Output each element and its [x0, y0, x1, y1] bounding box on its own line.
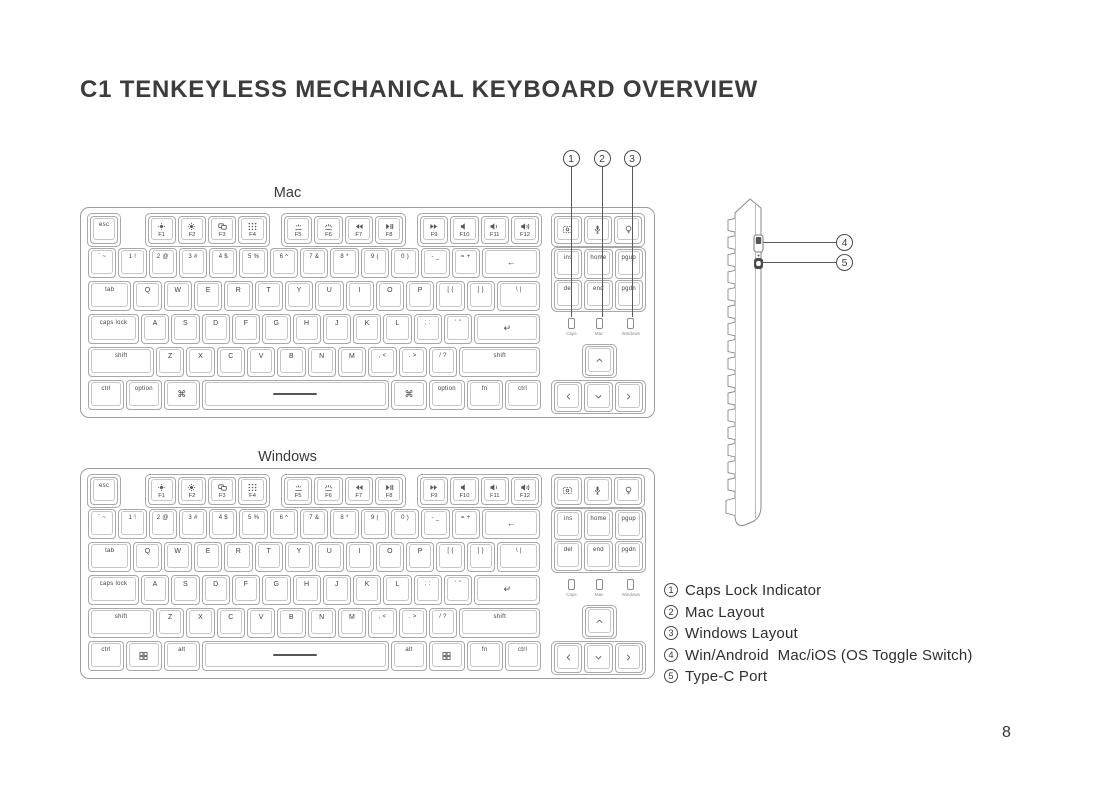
mac-led-indicator: Mac	[595, 318, 604, 336]
key	[429, 641, 465, 671]
key: F11	[481, 477, 509, 505]
legend-number-1: 1	[664, 583, 678, 597]
key: 0 )	[391, 509, 419, 539]
key: [ {	[436, 542, 464, 572]
key: 3 #	[179, 509, 207, 539]
key: ctrl	[505, 641, 541, 671]
brightness-up-icon	[186, 222, 197, 231]
key: L	[383, 314, 411, 344]
key	[554, 477, 582, 505]
key: F10	[450, 216, 478, 244]
key: ` ~	[88, 248, 116, 278]
win-logo-icon	[138, 651, 149, 660]
legend-number-4: 4	[664, 648, 678, 662]
key: K	[353, 575, 381, 605]
key: F9	[420, 477, 448, 505]
key: ' "	[444, 314, 472, 344]
key: X	[186, 347, 214, 377]
key: ; :	[414, 575, 442, 605]
key: X	[186, 608, 214, 638]
function-row: escF1F2F3F4F5F6F7F8F9F10F11F12	[87, 474, 648, 508]
callout-4-line	[763, 242, 836, 243]
key: L	[383, 575, 411, 605]
key: alt	[164, 641, 200, 671]
legend-text-2: Mac Layout	[685, 604, 765, 621]
key: F2	[178, 477, 206, 505]
key: 7 &	[300, 248, 328, 278]
command-icon: ⌘	[177, 390, 186, 399]
callout-4: 4	[836, 234, 853, 251]
key: D	[202, 575, 230, 605]
main-key-rows: ` ~1 !2 @3 #4 $5 %6 ^7 &8 *9 (0 )- _= +←…	[87, 509, 542, 674]
key	[554, 382, 582, 412]
key-group: F9F10F11F12	[417, 474, 542, 508]
key: ←	[482, 248, 541, 278]
key: home	[584, 249, 612, 279]
key: F5	[284, 477, 312, 505]
key	[202, 380, 389, 410]
key: / ?	[429, 347, 457, 377]
callout-2-number: 2	[599, 153, 605, 165]
callout-3-number: 3	[629, 153, 635, 165]
key: R	[224, 542, 252, 572]
legend-text-1: Caps Lock Indicator	[685, 582, 821, 599]
chevron-up-icon	[594, 617, 605, 626]
mute-icon	[459, 483, 470, 492]
key: F12	[511, 477, 539, 505]
key: pgup	[615, 249, 643, 279]
key: end	[584, 541, 612, 571]
key: F2	[178, 216, 206, 244]
caps-led-indicator: Caps	[566, 318, 577, 336]
key: 2 @	[149, 248, 177, 278]
mac-led-indicator: Mac	[595, 579, 604, 597]
key: J	[323, 575, 351, 605]
key-group: F9F10F11F12	[417, 213, 542, 247]
key: ] }	[467, 542, 495, 572]
legend-item: 2 Mac Layout	[664, 604, 973, 621]
key: pgdn	[615, 280, 643, 310]
arrow-cluster	[551, 605, 648, 675]
key: - _	[421, 509, 449, 539]
callout-3-line	[632, 167, 633, 317]
key: F4	[238, 477, 266, 505]
key: W	[164, 542, 192, 572]
key: U	[315, 281, 343, 311]
key: 5 %	[239, 248, 267, 278]
caps-led-indicator: Caps	[566, 579, 577, 597]
backlight-down-icon	[293, 222, 304, 231]
backlight-up-icon	[323, 222, 334, 231]
key: 9 (	[361, 509, 389, 539]
key: \ |	[497, 542, 540, 572]
key: alt	[391, 641, 427, 671]
key: Z	[156, 608, 184, 638]
key: N	[308, 608, 336, 638]
type-c-port-icon	[754, 258, 763, 269]
key: ] }	[467, 281, 495, 311]
key: V	[247, 347, 275, 377]
chevron-down-icon	[593, 653, 604, 662]
key: I	[346, 281, 374, 311]
mac-keyboard-label: Mac	[0, 185, 575, 201]
key: C	[217, 608, 245, 638]
legend-item: 4 Win/Android Mac/iOS (OS Toggle Switch)	[664, 647, 973, 664]
win-logo-icon	[441, 651, 452, 660]
mac-keyboard-diagram: escF1F2F3F4F5F6F7F8F9F10F11F12` ~1 !2 @3…	[80, 207, 655, 418]
volume-down-icon	[489, 483, 500, 492]
page-number: 8	[1002, 724, 1011, 742]
key: / ?	[429, 608, 457, 638]
chevron-down-icon	[593, 392, 604, 401]
key: F1	[148, 477, 176, 505]
key: F11	[481, 216, 509, 244]
key: esc	[90, 477, 118, 505]
chevron-up-icon	[594, 356, 605, 365]
key-group: F1F2F3F4	[145, 474, 270, 508]
volume-up-icon	[520, 483, 531, 492]
key: , <	[368, 347, 396, 377]
key: U	[315, 542, 343, 572]
key: F	[232, 314, 260, 344]
key: T	[255, 281, 283, 311]
backspace-icon: ←	[507, 258, 516, 267]
page-title: C1 TENKEYLESS MECHANICAL KEYBOARD OVERVI…	[80, 76, 758, 104]
key: pgup	[615, 510, 643, 540]
windows-keyboard-label: Windows	[0, 449, 575, 465]
key: ctrl	[88, 641, 124, 671]
key: tab	[88, 542, 131, 572]
key: F10	[450, 477, 478, 505]
key: del	[554, 280, 582, 310]
key: option	[126, 380, 162, 410]
manual-page: C1 TENKEYLESS MECHANICAL KEYBOARD OVERVI…	[0, 0, 1103, 788]
backlight-down-icon	[293, 483, 304, 492]
key	[614, 216, 642, 244]
key: M	[338, 347, 366, 377]
legend-text-3: Windows Layout	[685, 625, 798, 642]
callout-2: 2	[594, 150, 611, 167]
key: F6	[314, 216, 342, 244]
key: P	[406, 281, 434, 311]
callout-5-line	[763, 262, 836, 263]
key: F4	[238, 216, 266, 244]
callout-5-number: 5	[842, 257, 848, 269]
backlight-up-icon	[323, 483, 334, 492]
key: R	[224, 281, 252, 311]
windows-led-indicator: Windows	[622, 579, 640, 597]
volume-down-icon	[489, 222, 500, 231]
key-group: F1F2F3F4	[145, 213, 270, 247]
key	[202, 641, 389, 671]
key: F8	[375, 477, 403, 505]
arrow-cluster	[551, 344, 648, 414]
key	[584, 216, 612, 244]
key-group	[551, 474, 646, 508]
key	[554, 643, 582, 673]
key: - _	[421, 248, 449, 278]
key: F3	[208, 477, 236, 505]
legend-text-5: Type-C Port	[685, 668, 767, 685]
key: I	[346, 542, 374, 572]
brightness-down-icon	[156, 222, 167, 231]
legend: 1 Caps Lock Indicator 2 Mac Layout 3 Win…	[664, 582, 973, 690]
key-group: esc	[87, 474, 121, 508]
key: tab	[88, 281, 131, 311]
key: ←	[482, 509, 541, 539]
indicator-leds: CapsMacWindows	[557, 579, 649, 597]
key: ⌘	[391, 380, 427, 410]
key	[584, 643, 612, 673]
key: M	[338, 608, 366, 638]
key: E	[194, 542, 222, 572]
key	[585, 346, 613, 376]
key: [ {	[436, 281, 464, 311]
key: ctrl	[88, 380, 124, 410]
enter-icon: ↵	[504, 585, 512, 594]
key: shift	[88, 347, 154, 377]
key: C	[217, 347, 245, 377]
key: shift	[88, 608, 154, 638]
key: A	[141, 314, 169, 344]
enter-icon: ↵	[504, 324, 512, 333]
key: ↵	[474, 314, 540, 344]
key: O	[376, 542, 404, 572]
key: G	[262, 314, 290, 344]
key: A	[141, 575, 169, 605]
legend-item: 5 Type-C Port	[664, 668, 973, 685]
key: = +	[452, 248, 480, 278]
key: ' "	[444, 575, 472, 605]
key: Y	[285, 542, 313, 572]
key: ctrl	[505, 380, 541, 410]
key: del	[554, 541, 582, 571]
space-bar-icon	[273, 654, 317, 656]
mute-icon	[459, 222, 470, 231]
key: W	[164, 281, 192, 311]
key: pgdn	[615, 541, 643, 571]
key: fn	[467, 641, 503, 671]
key-group: esc	[87, 213, 121, 247]
chevron-left-icon	[563, 392, 574, 401]
key: end	[584, 280, 612, 310]
key: shift	[459, 608, 540, 638]
key	[615, 643, 643, 673]
play-pause-icon	[384, 222, 395, 231]
key: G	[262, 575, 290, 605]
chevron-right-icon	[623, 392, 634, 401]
key: D	[202, 314, 230, 344]
key: 5 %	[239, 509, 267, 539]
windows-keyboard-diagram: escF1F2F3F4F5F6F7F8F9F10F11F12` ~1 !2 @3…	[80, 468, 655, 679]
key: option	[429, 380, 465, 410]
key: Q	[133, 542, 161, 572]
key: caps lock	[88, 314, 139, 344]
brightness-down-icon	[156, 483, 167, 492]
key: S	[171, 575, 199, 605]
key: esc	[90, 216, 118, 244]
legend-item: 3 Windows Layout	[664, 625, 973, 642]
fast-forward-icon	[429, 483, 440, 492]
key	[585, 607, 613, 637]
key: V	[247, 608, 275, 638]
key: ins	[554, 249, 582, 279]
key: H	[293, 314, 321, 344]
legend-number-3: 3	[664, 626, 678, 640]
key: N	[308, 347, 336, 377]
bulb-icon	[623, 486, 634, 495]
chevron-left-icon	[563, 653, 574, 662]
key: 8 *	[330, 248, 358, 278]
legend-item: 1 Caps Lock Indicator	[664, 582, 973, 599]
callout-5: 5	[836, 254, 853, 271]
key: T	[255, 542, 283, 572]
callout-2-line	[602, 167, 603, 317]
key: 0 )	[391, 248, 419, 278]
key-group: F5F6F7F8	[281, 474, 406, 508]
callout-1: 1	[563, 150, 580, 167]
os-toggle-switch-icon	[754, 235, 763, 252]
key: S	[171, 314, 199, 344]
key: fn	[467, 380, 503, 410]
key: F3	[208, 216, 236, 244]
key: . >	[399, 608, 427, 638]
key	[614, 477, 642, 505]
key: O	[376, 281, 404, 311]
play-pause-icon	[384, 483, 395, 492]
nav-cluster: inshomepgupdelendpgdn	[551, 508, 646, 573]
key: F1	[148, 216, 176, 244]
key: \ |	[497, 281, 540, 311]
windows-led-indicator: Windows	[622, 318, 640, 336]
screenshot-icon	[562, 486, 573, 495]
rewind-icon	[353, 483, 364, 492]
mission-control-icon	[217, 483, 228, 492]
key: 4 $	[209, 248, 237, 278]
key: 6 ^	[270, 509, 298, 539]
key	[615, 382, 643, 412]
fast-forward-icon	[429, 222, 440, 231]
main-key-rows: ` ~1 !2 @3 #4 $5 %6 ^7 &8 *9 (0 )- _= +←…	[87, 248, 542, 413]
key: Q	[133, 281, 161, 311]
key: F9	[420, 216, 448, 244]
key: Y	[285, 281, 313, 311]
key	[554, 216, 582, 244]
key: 9 (	[361, 248, 389, 278]
key	[584, 382, 612, 412]
key: home	[584, 510, 612, 540]
key: 2 @	[149, 509, 177, 539]
key: E	[194, 281, 222, 311]
key: ins	[554, 510, 582, 540]
volume-up-icon	[520, 222, 531, 231]
mission-control-icon	[217, 222, 228, 231]
key	[584, 477, 612, 505]
key: shift	[459, 347, 540, 377]
key: H	[293, 575, 321, 605]
indicator-leds: CapsMacWindows	[557, 318, 649, 336]
rewind-icon	[353, 222, 364, 231]
legend-number-2: 2	[664, 605, 678, 619]
key: 1 !	[118, 248, 146, 278]
brightness-up-icon	[186, 483, 197, 492]
key: ⌘	[164, 380, 200, 410]
key: F6	[314, 477, 342, 505]
chevron-right-icon	[623, 653, 634, 662]
callout-1-number: 1	[568, 153, 574, 165]
key: , <	[368, 608, 396, 638]
key: P	[406, 542, 434, 572]
space-bar-icon	[273, 393, 317, 395]
key: F5	[284, 216, 312, 244]
key: K	[353, 314, 381, 344]
key: ` ~	[88, 509, 116, 539]
legend-text-4: Win/Android Mac/iOS (OS Toggle Switch)	[685, 647, 973, 664]
key: = +	[452, 509, 480, 539]
command-icon: ⌘	[404, 390, 413, 399]
key: 8 *	[330, 509, 358, 539]
keyboard-side-view	[714, 196, 774, 536]
backspace-icon: ←	[507, 519, 516, 528]
key: caps lock	[88, 575, 139, 605]
key	[126, 641, 162, 671]
launchpad-icon	[247, 483, 258, 492]
key: 3 #	[179, 248, 207, 278]
key: Z	[156, 347, 184, 377]
legend-number-5: 5	[664, 669, 678, 683]
function-row: escF1F2F3F4F5F6F7F8F9F10F11F12	[87, 213, 648, 247]
key: F7	[345, 216, 373, 244]
callout-3: 3	[624, 150, 641, 167]
key: F7	[345, 477, 373, 505]
key: 4 $	[209, 509, 237, 539]
key: ; :	[414, 314, 442, 344]
key: 6 ^	[270, 248, 298, 278]
launchpad-icon	[247, 222, 258, 231]
key: F8	[375, 216, 403, 244]
key: 1 !	[118, 509, 146, 539]
key: B	[277, 347, 305, 377]
key-group: F5F6F7F8	[281, 213, 406, 247]
callout-4-number: 4	[842, 237, 848, 249]
key: F	[232, 575, 260, 605]
key: J	[323, 314, 351, 344]
key: F12	[511, 216, 539, 244]
key: 7 &	[300, 509, 328, 539]
key: ↵	[474, 575, 540, 605]
mic-icon	[592, 486, 603, 495]
key: B	[277, 608, 305, 638]
callout-1-line	[571, 167, 572, 317]
key: . >	[399, 347, 427, 377]
